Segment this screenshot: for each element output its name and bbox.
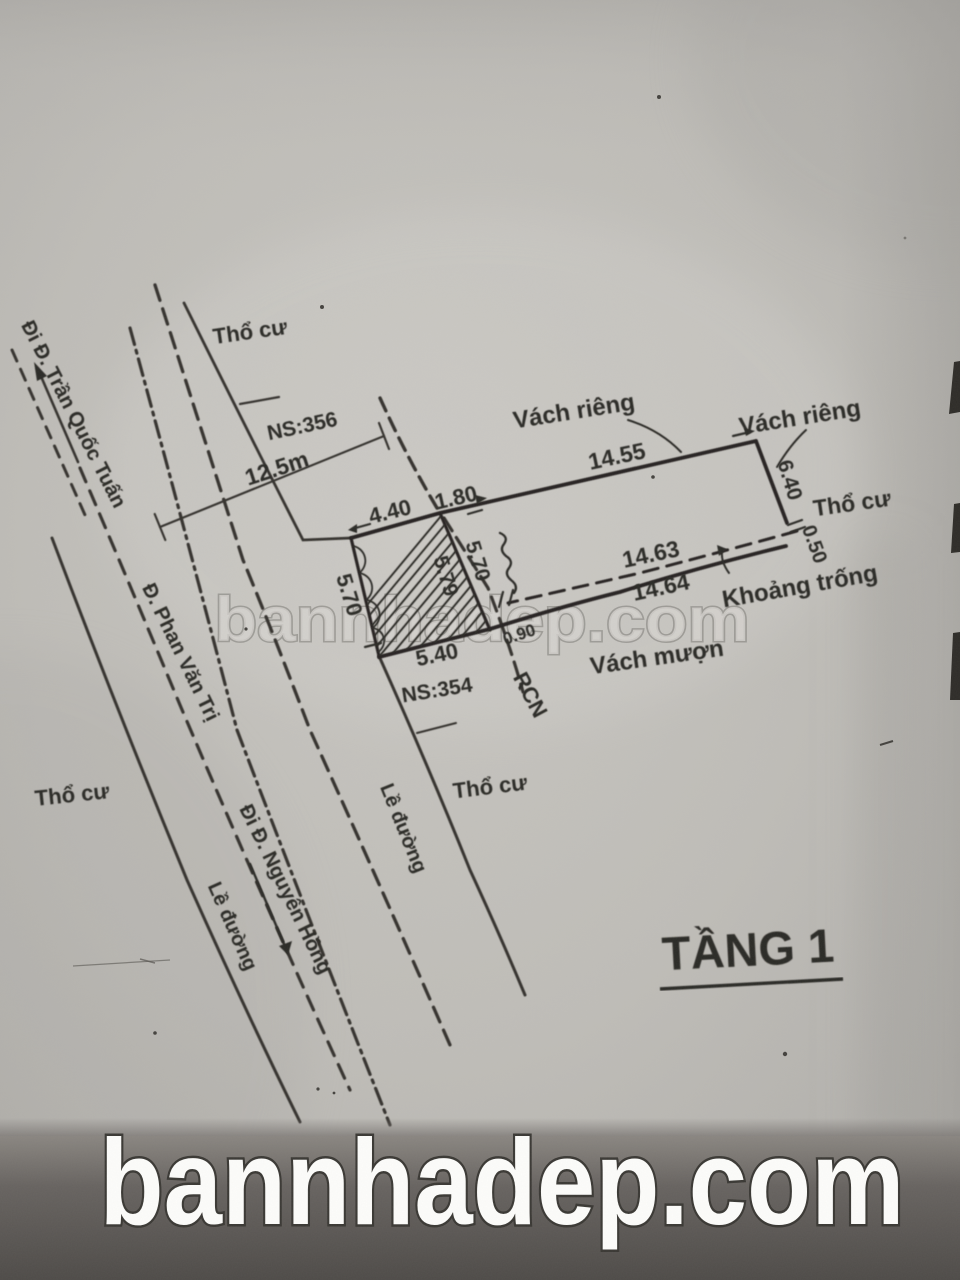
svg-text:TẦNG 1: TẦNG 1 [661, 919, 836, 981]
svg-text:bannhadep.com: bannhadep.com [100, 1114, 905, 1250]
